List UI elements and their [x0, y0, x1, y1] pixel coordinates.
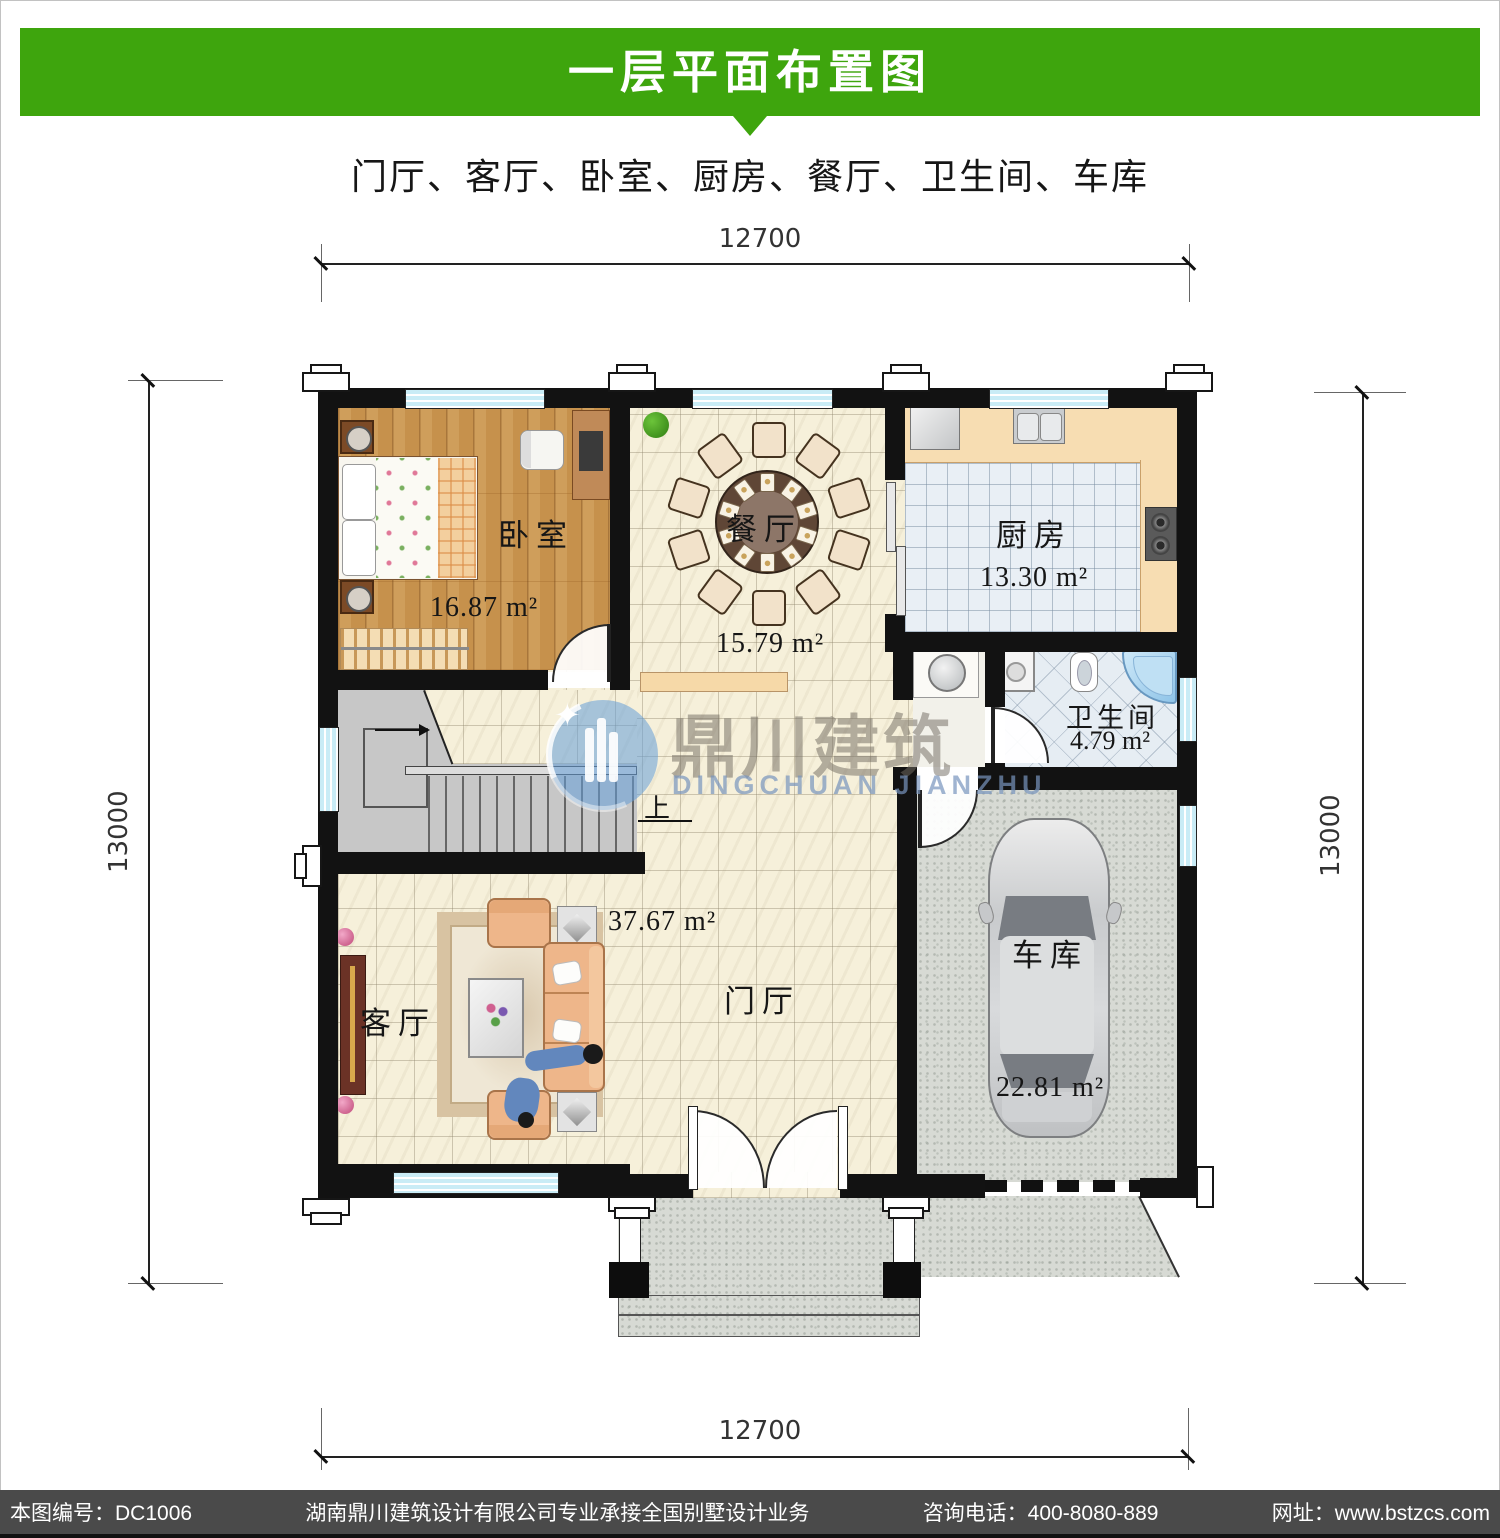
- sofa-backrest: [489, 1125, 549, 1138]
- dim-extension: [128, 380, 223, 381]
- footer-phone: 咨询电话：400-8080-889: [923, 1497, 1159, 1527]
- washer-door: [1006, 662, 1026, 682]
- monitor: [579, 431, 603, 471]
- pilaster-cap: [1196, 1166, 1214, 1208]
- door-threshold: [917, 769, 978, 788]
- hall-area-value: 37.67 m²: [608, 906, 716, 938]
- clothes-rack: [340, 628, 468, 670]
- dim-extension: [1188, 1408, 1189, 1470]
- bathroom-area: 4.79 m²: [1070, 726, 1150, 756]
- garage-label: 车库: [1012, 930, 1088, 975]
- bed-pillow: [342, 464, 376, 520]
- table-lamp: [563, 1098, 591, 1126]
- sink-basin: [1040, 413, 1062, 441]
- porch-column-shaft: [619, 1214, 641, 1264]
- dim-extension: [128, 1283, 223, 1284]
- table-flowers: [482, 998, 512, 1032]
- stair-break-cutaway: [425, 690, 637, 764]
- place-setting: [760, 553, 775, 572]
- dining-label: 餐厅: [726, 504, 802, 549]
- entrance-door-leaf: [688, 1106, 698, 1190]
- table-lamp: [563, 914, 591, 942]
- person-head: [583, 1044, 603, 1064]
- stair-treads: [428, 776, 637, 852]
- wall-bedroom-bottom: [338, 670, 548, 690]
- dim-top-line: [321, 263, 1189, 265]
- stair-handrail: [405, 766, 637, 775]
- foyer-label: 门厅: [724, 976, 800, 1021]
- garage-entry-door-leaf: [918, 790, 922, 848]
- window-bathroom: [1179, 677, 1197, 742]
- bathroom-door-leaf: [991, 707, 995, 763]
- console-table: [640, 672, 788, 692]
- bed-plaid-blanket: [438, 458, 476, 578]
- floor-plan-page: 一层平面布置图 门厅、客厅、卧室、厨房、餐厅、卫生间、车库 12700 1270…: [0, 0, 1500, 1538]
- pilaster-cap: [608, 372, 656, 392]
- tv-screen-strip: [350, 966, 355, 1082]
- wall-bath-left: [985, 652, 1005, 707]
- burner: [1151, 513, 1170, 532]
- flower-pot: [336, 1096, 354, 1114]
- kitchen-sink: [1013, 408, 1065, 444]
- throw-pillow: [551, 960, 582, 987]
- garage-door-dashed: [985, 1180, 1140, 1192]
- dining-chair: [752, 590, 786, 626]
- living-label: 客厅: [360, 998, 436, 1043]
- title-banner: 一层平面布置图: [20, 28, 1480, 116]
- rack-rail: [341, 647, 469, 650]
- page-title: 一层平面布置图: [20, 28, 1480, 116]
- sofa-backrest: [589, 946, 603, 1088]
- stair-direction-arrow: [375, 729, 421, 731]
- bedroom-label: 卧室: [498, 510, 574, 555]
- footer-drawing-number: 本图编号：DC1006: [10, 1497, 192, 1527]
- wall-bottom: [630, 1174, 693, 1198]
- dim-bottom-value: 12700: [560, 1416, 960, 1446]
- wall-kitchen-bottom: [885, 632, 1177, 652]
- sliding-door-panel: [896, 546, 906, 616]
- window-garage: [1179, 805, 1197, 867]
- chair-backrest: [521, 431, 531, 468]
- dim-extension: [1189, 244, 1190, 302]
- wall-bedroom-right: [610, 408, 630, 690]
- porch-column-cap: [614, 1207, 650, 1219]
- pilaster-cap: [882, 372, 930, 392]
- porch-floor: [618, 1198, 920, 1295]
- pilaster-cap: [302, 372, 350, 392]
- window-dining: [692, 389, 833, 409]
- sofa-single-top: [487, 898, 551, 948]
- dim-left-value: 13000: [104, 756, 146, 908]
- porch-step: [618, 1315, 920, 1337]
- nightstand: [340, 420, 374, 454]
- wall-alcove-left: [893, 652, 913, 700]
- stair-arrow-head: [419, 724, 430, 736]
- desk: [572, 410, 610, 500]
- dining-area: 15.79 m²: [716, 628, 824, 660]
- porch-column-base: [883, 1262, 921, 1298]
- wall-stairs-bottom: [318, 852, 645, 874]
- place-setting: [760, 473, 775, 492]
- window-bedroom: [405, 389, 545, 409]
- wall-bath-bottom: [978, 767, 1177, 790]
- bedroom-area: 16.87 m²: [430, 592, 538, 624]
- window-stairs: [319, 727, 339, 812]
- dim-extension: [321, 244, 322, 302]
- window-living: [393, 1172, 559, 1194]
- dim-extension: [321, 1408, 322, 1470]
- side-table: [557, 1092, 597, 1132]
- potted-plant: [643, 412, 669, 438]
- sink-basin: [1017, 413, 1039, 441]
- wall-dining-kitchen: [885, 408, 905, 480]
- toilet-bowl: [1077, 660, 1092, 686]
- footer-bar: 本图编号：DC1006 湖南鼎川建筑设计有限公司专业承接全国别墅设计业务 咨询电…: [0, 1490, 1500, 1534]
- bathtub-basin: [1133, 656, 1173, 696]
- nightstand: [340, 580, 374, 614]
- subtitle-room-list: 门厅、客厅、卧室、厨房、餐厅、卫生间、车库: [0, 148, 1500, 200]
- person-head: [518, 1112, 534, 1128]
- dim-bottom-line: [321, 1456, 1189, 1458]
- footer-website: 网址：www.bstzcs.com: [1272, 1497, 1490, 1527]
- sliding-door-panel: [886, 482, 896, 552]
- refrigerator: [910, 404, 960, 450]
- bed-floral-sheet: [376, 458, 438, 578]
- porch-column-cap: [888, 1207, 924, 1219]
- wash-basin: [928, 654, 966, 692]
- dim-right-value: 13000: [1316, 758, 1358, 914]
- dim-top-value: 12700: [560, 224, 960, 254]
- stair-up-underline: [638, 820, 692, 822]
- wall-bath-bottom: [893, 767, 917, 790]
- wall-right: [1177, 408, 1197, 1198]
- bed-pillow: [342, 520, 376, 576]
- footer-bottom-strip: [0, 1534, 1500, 1538]
- porch-step: [618, 1295, 920, 1315]
- footer-company: 湖南鼎川建筑设计有限公司专业承接全国别墅设计业务: [305, 1497, 809, 1527]
- bedroom-door-leaf: [607, 624, 611, 682]
- squat-toilet: [1070, 652, 1098, 692]
- sofa-three-seat: [543, 942, 605, 1092]
- pilaster-cap: [294, 853, 307, 879]
- dining-chair: [752, 422, 786, 458]
- gas-stove: [1145, 507, 1177, 561]
- wall-foyer-garage: [897, 790, 917, 1198]
- entrance-door-leaf: [838, 1106, 848, 1190]
- kitchen-label: 厨房: [996, 510, 1072, 555]
- table-lamp: [346, 426, 372, 452]
- pilaster-cap: [1165, 372, 1213, 392]
- dim-right-line: [1362, 392, 1364, 1283]
- pilaster-cap: [310, 1212, 342, 1225]
- coffee-table: [468, 978, 524, 1058]
- kitchen-area: 13.30 m²: [980, 562, 1088, 594]
- garage-area: 22.81 m²: [996, 1072, 1104, 1104]
- burner: [1151, 536, 1170, 555]
- banner-pointer-triangle: [733, 116, 767, 136]
- table-lamp: [346, 586, 372, 612]
- dim-left-line: [148, 380, 150, 1283]
- porch-column-shaft: [893, 1214, 915, 1264]
- sofa-backrest: [489, 900, 549, 913]
- desk-chair: [520, 430, 564, 470]
- flower-pot: [336, 928, 354, 946]
- throw-pillow: [552, 1018, 583, 1044]
- driveway-apron: [920, 1196, 1180, 1277]
- wall-garage-bottom: [1140, 1178, 1197, 1198]
- porch-column-base: [609, 1262, 649, 1298]
- window-kitchen: [989, 389, 1109, 409]
